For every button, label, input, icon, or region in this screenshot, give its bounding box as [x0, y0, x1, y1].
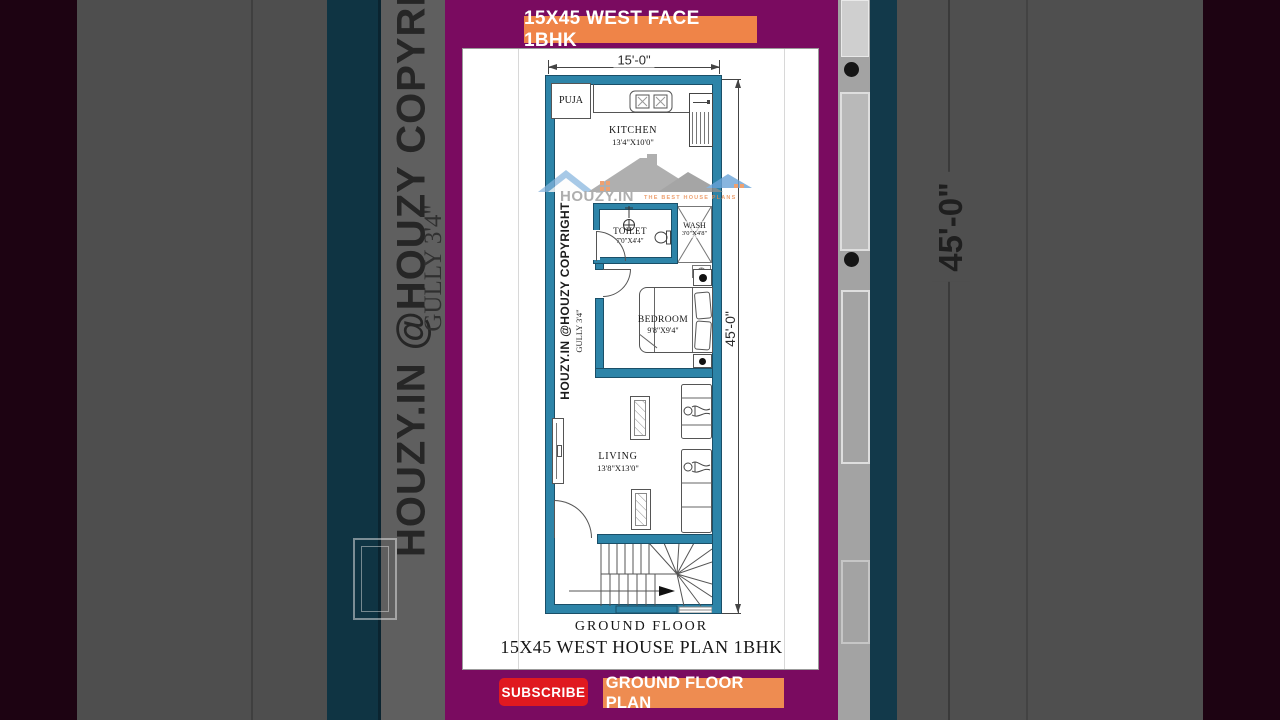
nightstand-bottom: [693, 354, 712, 368]
bedroom-size: 9'8"X9'4": [631, 326, 695, 335]
width-dim-arrow-right: [711, 64, 720, 70]
pillow-2: [694, 320, 712, 350]
height-dim-arrow-up: [735, 79, 741, 88]
toilet-name: TOILET: [601, 226, 659, 237]
height-dim-line: [738, 79, 739, 613]
kitchen-label: KITCHEN 13'4"X10'0": [583, 125, 683, 147]
plan-footer-title: GROUND FLOOR: [463, 619, 820, 636]
puja-label: PUJA: [559, 95, 583, 107]
pillow-1: [694, 291, 712, 319]
toilet-size: 7'0"X4'4": [601, 237, 659, 245]
height-dim-arrow-down: [735, 604, 741, 613]
gully-wall-upper: [596, 263, 603, 269]
bg-right-gray: [897, 0, 1203, 720]
living-label: LIVING 13'8"X13'0": [578, 451, 658, 473]
height-dimension: 45'-0": [722, 307, 738, 351]
tv-unit-icon: [552, 418, 564, 484]
window-icon-1: [630, 396, 650, 440]
gully-label: GULLY 3'4": [574, 309, 584, 352]
living-size: 13'8"X13'0": [578, 463, 658, 473]
fridge-handle: [693, 102, 708, 103]
wash-label: WASH 3'0"X4'8": [678, 221, 711, 238]
bg-bed-shape: [840, 92, 870, 251]
fridge-knob: [707, 100, 710, 104]
subscribe-button[interactable]: SUBSCRIBE: [499, 678, 588, 706]
sofa-icon-1: [681, 384, 713, 440]
window-glass-2: [635, 493, 647, 526]
bg-left-dark: [0, 0, 77, 720]
bg-lamp-dot: [844, 62, 859, 77]
ground-floor-plan-label: GROUND FLOOR PLAN: [606, 673, 782, 713]
ground-floor-plan-banner: GROUND FLOOR PLAN: [603, 678, 784, 708]
bg-left-line: [251, 0, 253, 720]
bg-furniture-shape: [841, 0, 869, 57]
bg-lamp-dot-2: [844, 252, 859, 267]
bg-height-dimension: 45'-0": [932, 172, 970, 282]
card-edge-line-left: [518, 49, 519, 669]
subscribe-label: SUBSCRIBE: [501, 685, 585, 700]
kitchen-name: KITCHEN: [583, 125, 683, 137]
living-bottom-wall: [598, 535, 712, 543]
staircase: [554, 543, 712, 613]
title-banner: 15X45 WEST FACE 1BHK: [524, 16, 757, 43]
bg-stair-shape: [841, 560, 870, 644]
wash-area: WASH 3'0"X4'8": [677, 206, 712, 263]
title-banner-label: 15X45 WEST FACE 1BHK: [524, 8, 757, 52]
plan-copyright-text: HOUZY.IN @HOUZY COPYRIGHT: [558, 202, 572, 400]
bedroom-label: BEDROOM 9'8"X9'4": [631, 315, 695, 336]
bg-blurred-window-inner: [361, 546, 389, 612]
bg-dim-line-2: [1026, 0, 1028, 720]
bedroom-name: BEDROOM: [631, 315, 695, 326]
living-name: LIVING: [578, 451, 658, 463]
bg-right-teal-wall: [870, 0, 897, 720]
bg-sofa-shape: [841, 290, 870, 464]
window-glass: [634, 400, 646, 436]
plan-footer-subtitle: 15X45 WEST HOUSE PLAN 1BHK: [463, 637, 820, 658]
lamp-icon-2: [699, 358, 706, 365]
video-frame: HOUZY.IN @HOUZY COPYRIGHT GULLY 3'4" 45'…: [0, 0, 1280, 720]
video-column: 15X45 WEST FACE 1BHK 15'-0" 45'-0": [445, 0, 838, 720]
wash-name: WASH: [678, 221, 711, 230]
toilet-label: TOILET 7'0"X4'4": [601, 226, 659, 245]
fridge-icon: [689, 93, 713, 147]
width-dim-arrow-left: [548, 64, 557, 70]
gully-wall-lower: [596, 299, 603, 369]
width-dimension: 15'-0": [613, 53, 654, 68]
bg-gully-label: GULLY 3'4": [420, 204, 448, 331]
bg-dim-line-1: [948, 0, 950, 720]
bg-left-gray: [77, 0, 327, 720]
lamp-icon: [699, 274, 707, 282]
sofa-icon-2: [681, 449, 713, 533]
card-edge-line-right: [784, 49, 785, 669]
bedroom-bottom-wall: [596, 369, 712, 377]
window-icon-2: [631, 489, 651, 530]
nightstand-top: [693, 269, 712, 286]
kitchen-size: 13'4"X10'0": [583, 137, 683, 147]
plan-card: 15'-0" 45'-0" PUJA: [462, 48, 819, 670]
bg-right-furniture-strip: [838, 0, 870, 720]
stove-icon: [629, 90, 673, 113]
room-puja: PUJA: [551, 83, 591, 119]
bg-right-dark: [1203, 0, 1280, 720]
wash-size: 3'0"X4'8": [678, 230, 711, 238]
fridge-coils: [692, 112, 710, 144]
height-dim-tick-bottom: [720, 613, 741, 614]
tv-box: [557, 445, 562, 457]
puja-double-line: [593, 84, 594, 113]
